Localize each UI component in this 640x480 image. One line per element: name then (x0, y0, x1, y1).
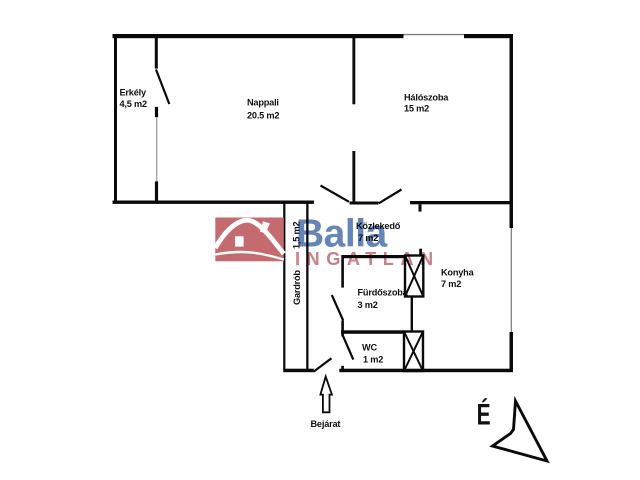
svg-text:Erkély: Erkély (120, 88, 147, 98)
svg-text:Nappali: Nappali (247, 98, 279, 108)
svg-text:3 m2: 3 m2 (358, 300, 378, 310)
svg-text:Konyha: Konyha (441, 268, 475, 278)
svg-text:15 m2: 15 m2 (404, 104, 429, 114)
svg-text:Hálószoba: Hálószoba (404, 93, 449, 103)
svg-text:Bejárat: Bejárat (311, 419, 341, 429)
svg-text:Gardrób: Gardrób (292, 270, 302, 305)
svg-text:WC: WC (362, 343, 377, 353)
svg-text:INGATLAN: INGATLAN (295, 249, 440, 269)
svg-text:É: É (477, 398, 491, 432)
svg-text:1 m2: 1 m2 (363, 355, 383, 365)
svg-text:Fürdőszoba: Fürdőszoba (358, 288, 409, 298)
svg-text:20.5 m2: 20.5 m2 (247, 110, 279, 120)
svg-text:4,5 m2: 4,5 m2 (120, 99, 147, 109)
svg-text:7 m2: 7 m2 (441, 279, 461, 289)
